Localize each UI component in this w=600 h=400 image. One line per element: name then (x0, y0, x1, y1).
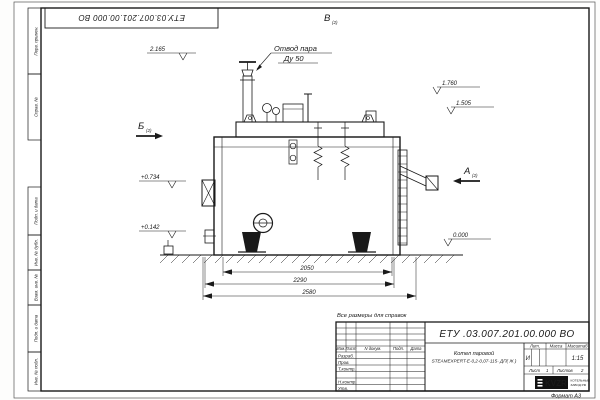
logo-stripe (538, 385, 543, 387)
elevation-value: +0.734 (141, 175, 160, 181)
elevation-value: +0.142 (141, 225, 160, 231)
dim-value-2290: 2290 (292, 278, 307, 284)
sheets-label: Листов (556, 368, 573, 373)
scale-value: 1:15 (572, 356, 584, 362)
view-letter: А (463, 166, 470, 177)
margin-label: Справ. № (34, 97, 39, 117)
mass-label: Масса (550, 344, 563, 349)
lit-label: Лит. (529, 344, 540, 349)
elevation-value: 1.505 (456, 101, 472, 107)
logo-text: KVZR (545, 379, 567, 388)
callout-line1: Отвод пара (274, 44, 317, 53)
logo-stripe (538, 382, 543, 384)
view-letter: В (324, 13, 331, 24)
th-izm: Изм. (337, 346, 346, 351)
gost-drawing-svg: Перв. примен. Справ. № Подп. и дата Инв.… (0, 0, 600, 400)
sheet-label: Лист (528, 368, 540, 373)
view-sheet-ref: (2) (146, 128, 152, 133)
staff-utv: Утв. (338, 386, 348, 391)
margin-label: Подп. и дата (34, 314, 39, 342)
title-designation: ЕТУ .03.007.201.00.000 ВО (439, 329, 574, 340)
product-name: Котел паровой (454, 350, 494, 357)
company-line2: ЗАВОД РФ (571, 383, 587, 387)
staff-prov: Пров. (338, 360, 350, 365)
elevation-value: 0.000 (453, 233, 469, 239)
lit-value: И (526, 356, 531, 362)
format-label: Формат А3 (551, 394, 582, 400)
staff-nkontr: Н.контр. (338, 379, 357, 384)
margin-label: Взам. инв. № (34, 274, 39, 301)
view-letter: Б (138, 121, 144, 132)
th-data: Дата (409, 346, 422, 351)
staff-tkontr: Т.контр. (338, 366, 356, 371)
margin-label: Инв. № подл. (34, 358, 39, 385)
product-model: STEAMEXPERT-Е-0,2-0,07-115- ДП( Ж ) (432, 359, 517, 364)
callout-line2: Ду 50 (283, 54, 304, 63)
margin-label: Перв. примен. (34, 26, 39, 55)
dim-value-2050: 2050 (299, 266, 314, 272)
elevation-value: 1.760 (442, 81, 458, 87)
elevation-value: 2.165 (149, 47, 166, 53)
staff-razrab: Разраб. (338, 353, 354, 358)
logo-stripe (538, 379, 543, 381)
scale-label: Масштаб (567, 344, 588, 349)
top-stamp-designation: ЕТУ.03.007.201.00.000 ВО (78, 13, 185, 22)
margin-label: Инв. № дубл. (34, 239, 39, 266)
view-sheet-ref: (2) (332, 20, 338, 25)
drawing-sheet: Перв. примен. Справ. № Подп. и дата Инв.… (0, 0, 600, 400)
dim-value-2580: 2580 (301, 290, 316, 296)
reference-note: Все размеры для справок (337, 313, 407, 319)
view-sheet-ref: (2) (472, 173, 478, 178)
margin-label: Подп. и дата (34, 197, 39, 225)
th-ndocum: N докум. (365, 346, 382, 351)
th-podp: Подп. (393, 346, 404, 351)
company-line1: КОТЕЛЬНЫЙ (571, 379, 590, 383)
th-list: Лист (345, 346, 357, 351)
